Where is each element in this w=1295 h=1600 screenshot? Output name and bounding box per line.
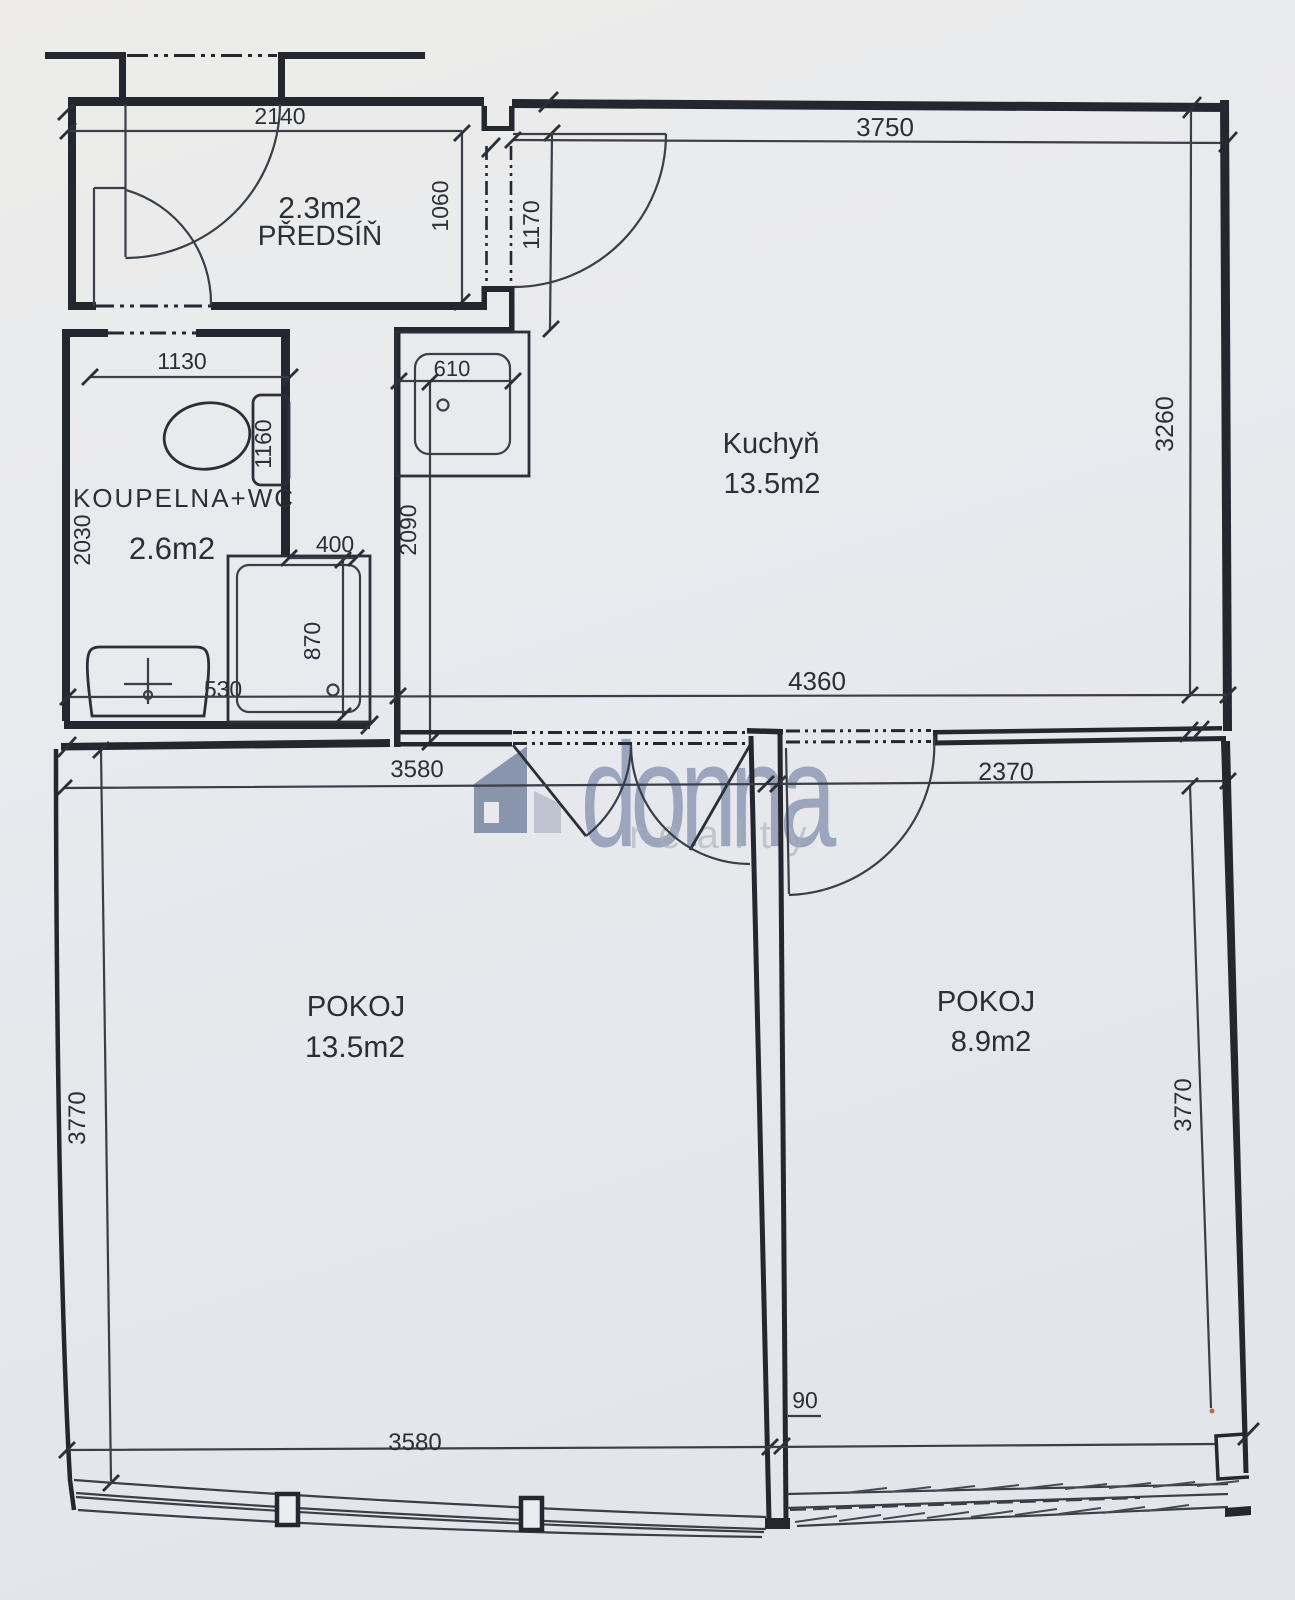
svg-text:PŘEDSÍŇ: PŘEDSÍŇ xyxy=(258,220,382,251)
svg-text:KOUPELNA+WC: KOUPELNA+WC xyxy=(73,483,295,513)
svg-text:2030: 2030 xyxy=(69,514,95,565)
svg-text:8.9m2: 8.9m2 xyxy=(951,1026,1032,1058)
svg-text:4360: 4360 xyxy=(788,666,846,696)
svg-text:1130: 1130 xyxy=(157,348,206,374)
svg-text:POKOJ: POKOJ xyxy=(937,986,1035,1018)
svg-text:13.5m2: 13.5m2 xyxy=(305,1031,405,1064)
svg-text:POKOJ: POKOJ xyxy=(307,991,405,1023)
svg-text:1170: 1170 xyxy=(518,200,544,249)
svg-text:3580: 3580 xyxy=(390,756,443,783)
svg-text:3260: 3260 xyxy=(1151,396,1179,452)
svg-text:13.5m2: 13.5m2 xyxy=(724,468,821,500)
svg-text:3580: 3580 xyxy=(388,1429,441,1456)
svg-text:3770: 3770 xyxy=(64,1091,91,1144)
svg-text:2140: 2140 xyxy=(254,103,305,129)
svg-text:3750: 3750 xyxy=(856,112,914,142)
svg-text:90: 90 xyxy=(792,1387,818,1413)
svg-text:610: 610 xyxy=(434,356,471,381)
svg-text:2.6m2: 2.6m2 xyxy=(129,531,215,566)
svg-text:2370: 2370 xyxy=(978,758,1034,786)
svg-text:3770: 3770 xyxy=(1170,1078,1197,1131)
svg-text:400: 400 xyxy=(316,531,354,557)
svg-text:Kuchyň: Kuchyň xyxy=(723,428,820,460)
svg-text:870: 870 xyxy=(299,622,325,660)
svg-text:1160: 1160 xyxy=(250,419,276,468)
svg-text:2090: 2090 xyxy=(395,504,421,555)
svg-text:1060: 1060 xyxy=(427,180,453,231)
